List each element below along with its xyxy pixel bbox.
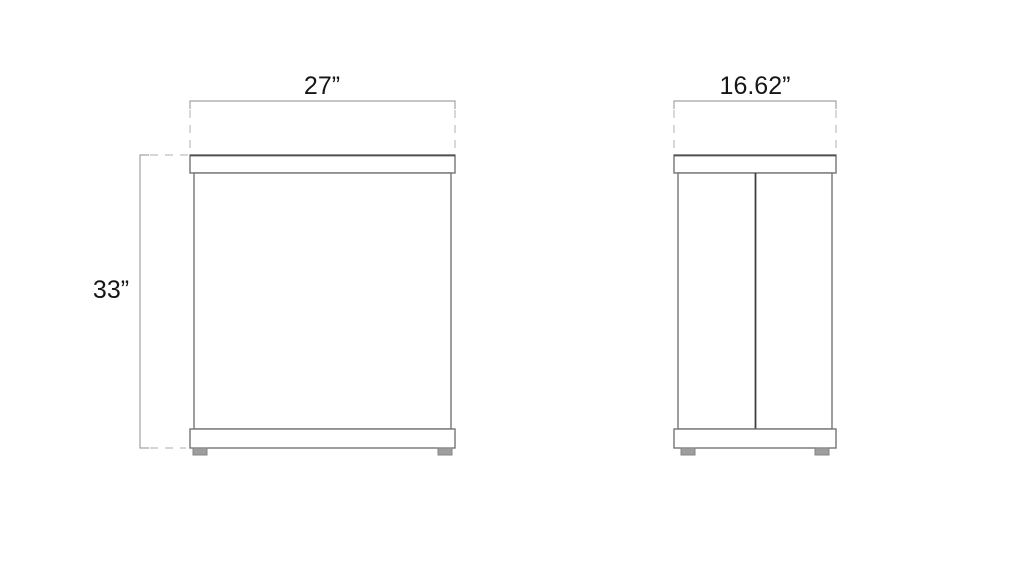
front-left-foot [193, 448, 207, 455]
front-right-foot [438, 448, 452, 455]
width-dimension: 27” [190, 72, 455, 155]
front-view [190, 155, 455, 455]
front-top-board [190, 155, 455, 173]
side-right-foot [815, 448, 829, 455]
front-base-board [190, 429, 455, 448]
front-body-panel [194, 173, 451, 429]
dimension-drawing-svg: 27” 33” 16.62” [0, 0, 1024, 569]
height-dimension-line [140, 155, 149, 448]
side-top-board [674, 155, 836, 173]
dimension-drawing-canvas: 27” 33” 16.62” [0, 0, 1024, 569]
height-dimension: 33” [93, 155, 188, 448]
side-base-board [674, 429, 836, 448]
depth-dimension: 16.62” [674, 72, 836, 155]
side-view [674, 155, 836, 455]
depth-dimension-line [674, 101, 836, 109]
height-dimension-label: 33” [93, 276, 129, 304]
width-dimension-label: 27” [304, 72, 340, 100]
width-dimension-line [190, 101, 455, 109]
side-left-foot [681, 448, 695, 455]
depth-dimension-label: 16.62” [720, 72, 791, 100]
